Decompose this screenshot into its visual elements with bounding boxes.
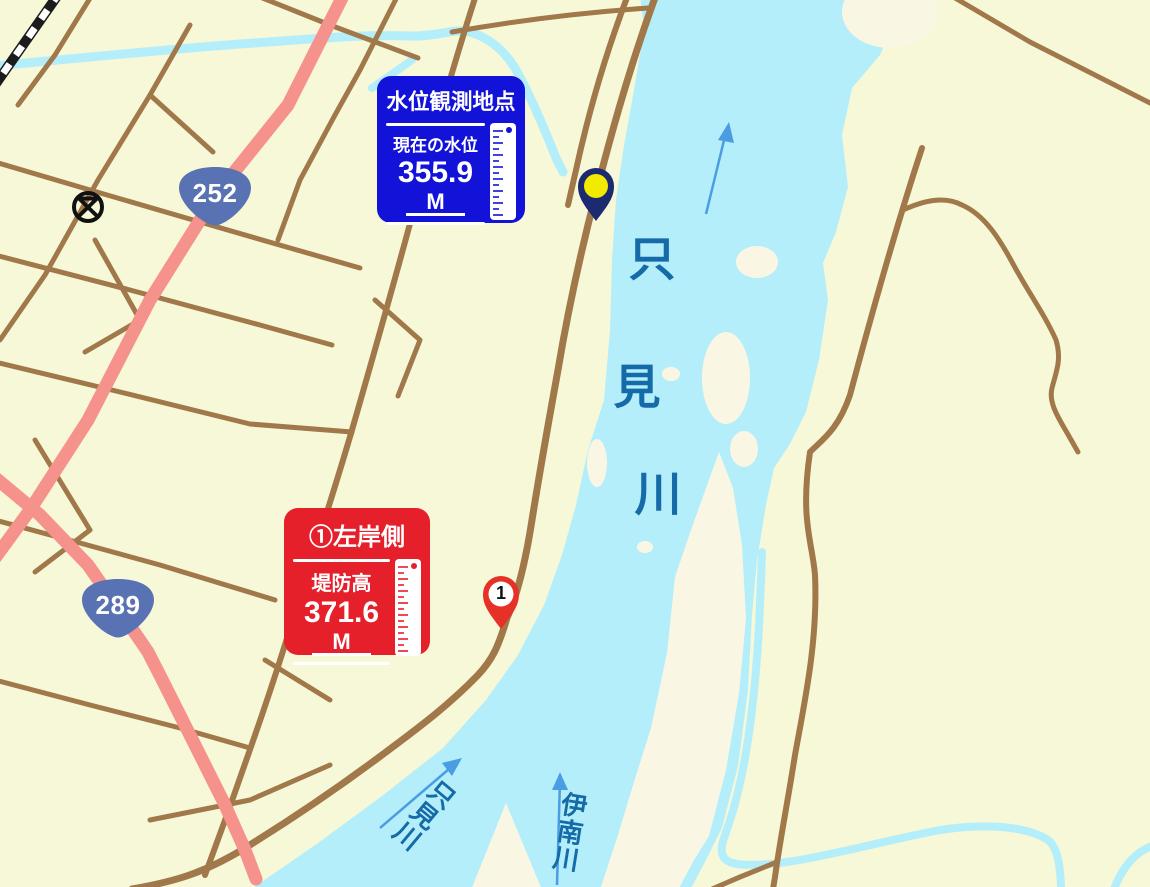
road bbox=[375, 300, 420, 396]
levee-point-pin[interactable]: 1 bbox=[479, 575, 523, 631]
river-name-char: 見 bbox=[614, 349, 661, 418]
route-number: 289 bbox=[96, 590, 141, 621]
road bbox=[0, 362, 352, 432]
sandbar-island bbox=[730, 431, 758, 467]
divider bbox=[386, 222, 485, 225]
sandbar-island bbox=[702, 332, 750, 424]
river-name-char: 只 bbox=[629, 221, 676, 290]
water-level-title: 水位観測地点 bbox=[386, 85, 516, 116]
road bbox=[0, 680, 250, 748]
levee-infobox: ①左岸側 堤防高 371.6 M bbox=[284, 508, 430, 655]
water-level-infobox: 水位観測地点 現在の水位 355.9 M bbox=[377, 76, 525, 223]
divider bbox=[293, 662, 390, 665]
divider bbox=[293, 559, 390, 562]
sandbar-island bbox=[736, 246, 778, 278]
route-badge-252: 252 bbox=[177, 166, 253, 228]
sandbar-island bbox=[637, 541, 653, 553]
sandbar-island bbox=[587, 439, 607, 487]
stream-east-channel bbox=[722, 552, 1061, 887]
levee-title: ①左岸側 bbox=[293, 517, 421, 552]
levee-value: 371.6 bbox=[304, 596, 379, 630]
police-station-icon bbox=[70, 189, 106, 225]
road bbox=[18, 0, 92, 105]
levee-unit: M bbox=[312, 630, 370, 656]
route-number: 252 bbox=[193, 178, 238, 209]
road-east-top bbox=[950, 0, 1150, 104]
levee-pin-number: 1 bbox=[479, 583, 523, 604]
water-level-value: 355.9 bbox=[398, 156, 473, 190]
map-canvas bbox=[0, 0, 1150, 887]
ruler-icon bbox=[395, 559, 421, 656]
stream-corner bbox=[1114, 846, 1150, 887]
water-level-unit: M bbox=[406, 190, 464, 216]
river-map: 只 見 川 只見川 伊南川 252 289 水位観測地点 現在の水位 bbox=[0, 0, 1150, 887]
observation-point-pin[interactable] bbox=[574, 167, 618, 223]
highway-route-252 bbox=[0, 0, 345, 558]
railroad-track-dashes bbox=[0, 0, 60, 95]
highway-route-289 bbox=[0, 475, 256, 879]
railroad-track bbox=[0, 0, 60, 95]
route-badge-289: 289 bbox=[80, 578, 156, 640]
river-name-char: 川 bbox=[635, 456, 682, 525]
ruler-icon bbox=[490, 123, 516, 220]
divider bbox=[386, 123, 485, 126]
levee-label: 堤防高 bbox=[312, 567, 372, 596]
road-east-winding bbox=[903, 200, 1078, 452]
road bbox=[150, 95, 213, 152]
sandbar-island bbox=[662, 367, 680, 381]
water-level-label: 現在の水位 bbox=[393, 131, 478, 156]
